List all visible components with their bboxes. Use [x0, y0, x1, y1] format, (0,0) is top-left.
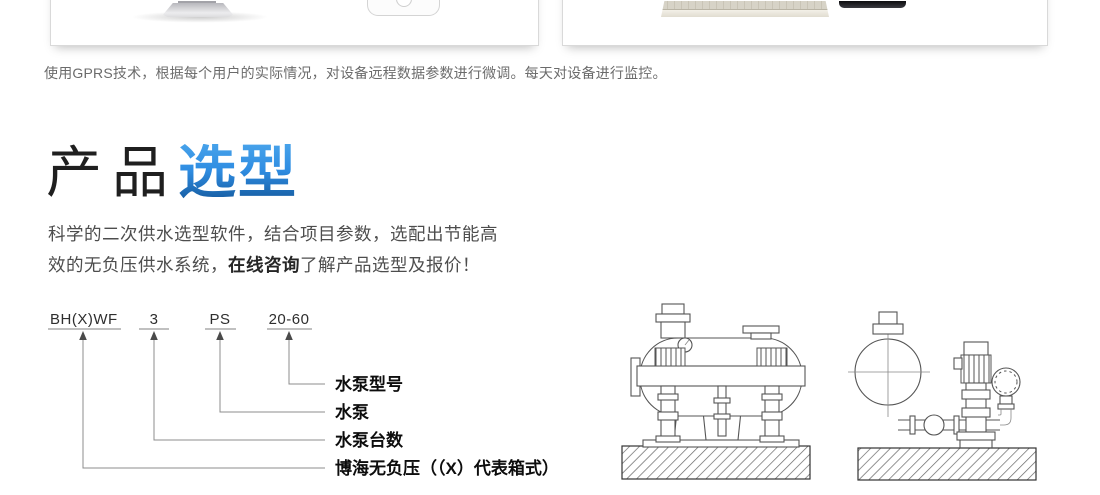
online-consult-link[interactable]: 在线咨询: [228, 255, 300, 275]
product-selection-page: 使用GPRS技术，根据每个用户的实际情况，对设备远程数据参数进行微调。每天对设备…: [0, 0, 1100, 495]
gprs-caption: 使用GPRS技术，根据每个用户的实际情况，对设备远程数据参数进行微调。每天对设备…: [44, 63, 667, 83]
vertical-pump-illustration: [858, 302, 1058, 492]
code-pump-model: 20-60: [269, 311, 310, 328]
intro-text: 科学的二次供水选型软件，结合项目参数，选配出节能高 效的无负压供水系统，在线咨询…: [48, 219, 498, 281]
monitor-stand-base: [161, 3, 235, 17]
heading-highlight: 选型: [178, 144, 298, 202]
intro-line1: 科学的二次供水选型软件，结合项目参数，选配出节能高: [48, 224, 498, 244]
label-pump: 水泵: [335, 402, 369, 422]
label-series: 博海无负压（（X）代表箱式）: [335, 458, 559, 478]
phone-bottom-image: [367, 0, 440, 16]
discharge-valve: [992, 368, 1020, 425]
photo-card-keyboard-monitor: [562, 0, 1048, 46]
heading-prefix: 产品: [46, 145, 178, 201]
monitor-bottom-edge-image: [839, 1, 906, 8]
vertical-pump: [954, 342, 995, 448]
keyboard-keys: [661, 1, 829, 9]
code-series: BH(X)WF: [50, 311, 118, 328]
intro-line2-after: 了解产品选型及报价！: [300, 255, 480, 275]
keyboard-bezel: [661, 9, 829, 18]
intro-line2-before: 效的无负压供水系统，: [48, 255, 228, 275]
phone-home-button-icon: [396, 0, 412, 7]
code-pump: PS: [209, 311, 230, 328]
label-pump-count: 水泵台数: [335, 430, 404, 450]
photo-card-monitor-phone: [50, 0, 539, 46]
label-pump-model: 水泵型号: [335, 374, 403, 394]
model-code-diagram: BH(X)WF 3 PS 20-60 水泵型号 水泵 水泵台数 博海无负压（: [40, 300, 620, 495]
tank-booster-illustration: [615, 302, 860, 492]
arrowheads: [79, 331, 293, 340]
leader-lines: [83, 339, 325, 468]
keyboard-image: [661, 1, 829, 17]
section-heading: 产品 选型: [46, 144, 298, 202]
code-pump-count: 3: [150, 311, 159, 328]
